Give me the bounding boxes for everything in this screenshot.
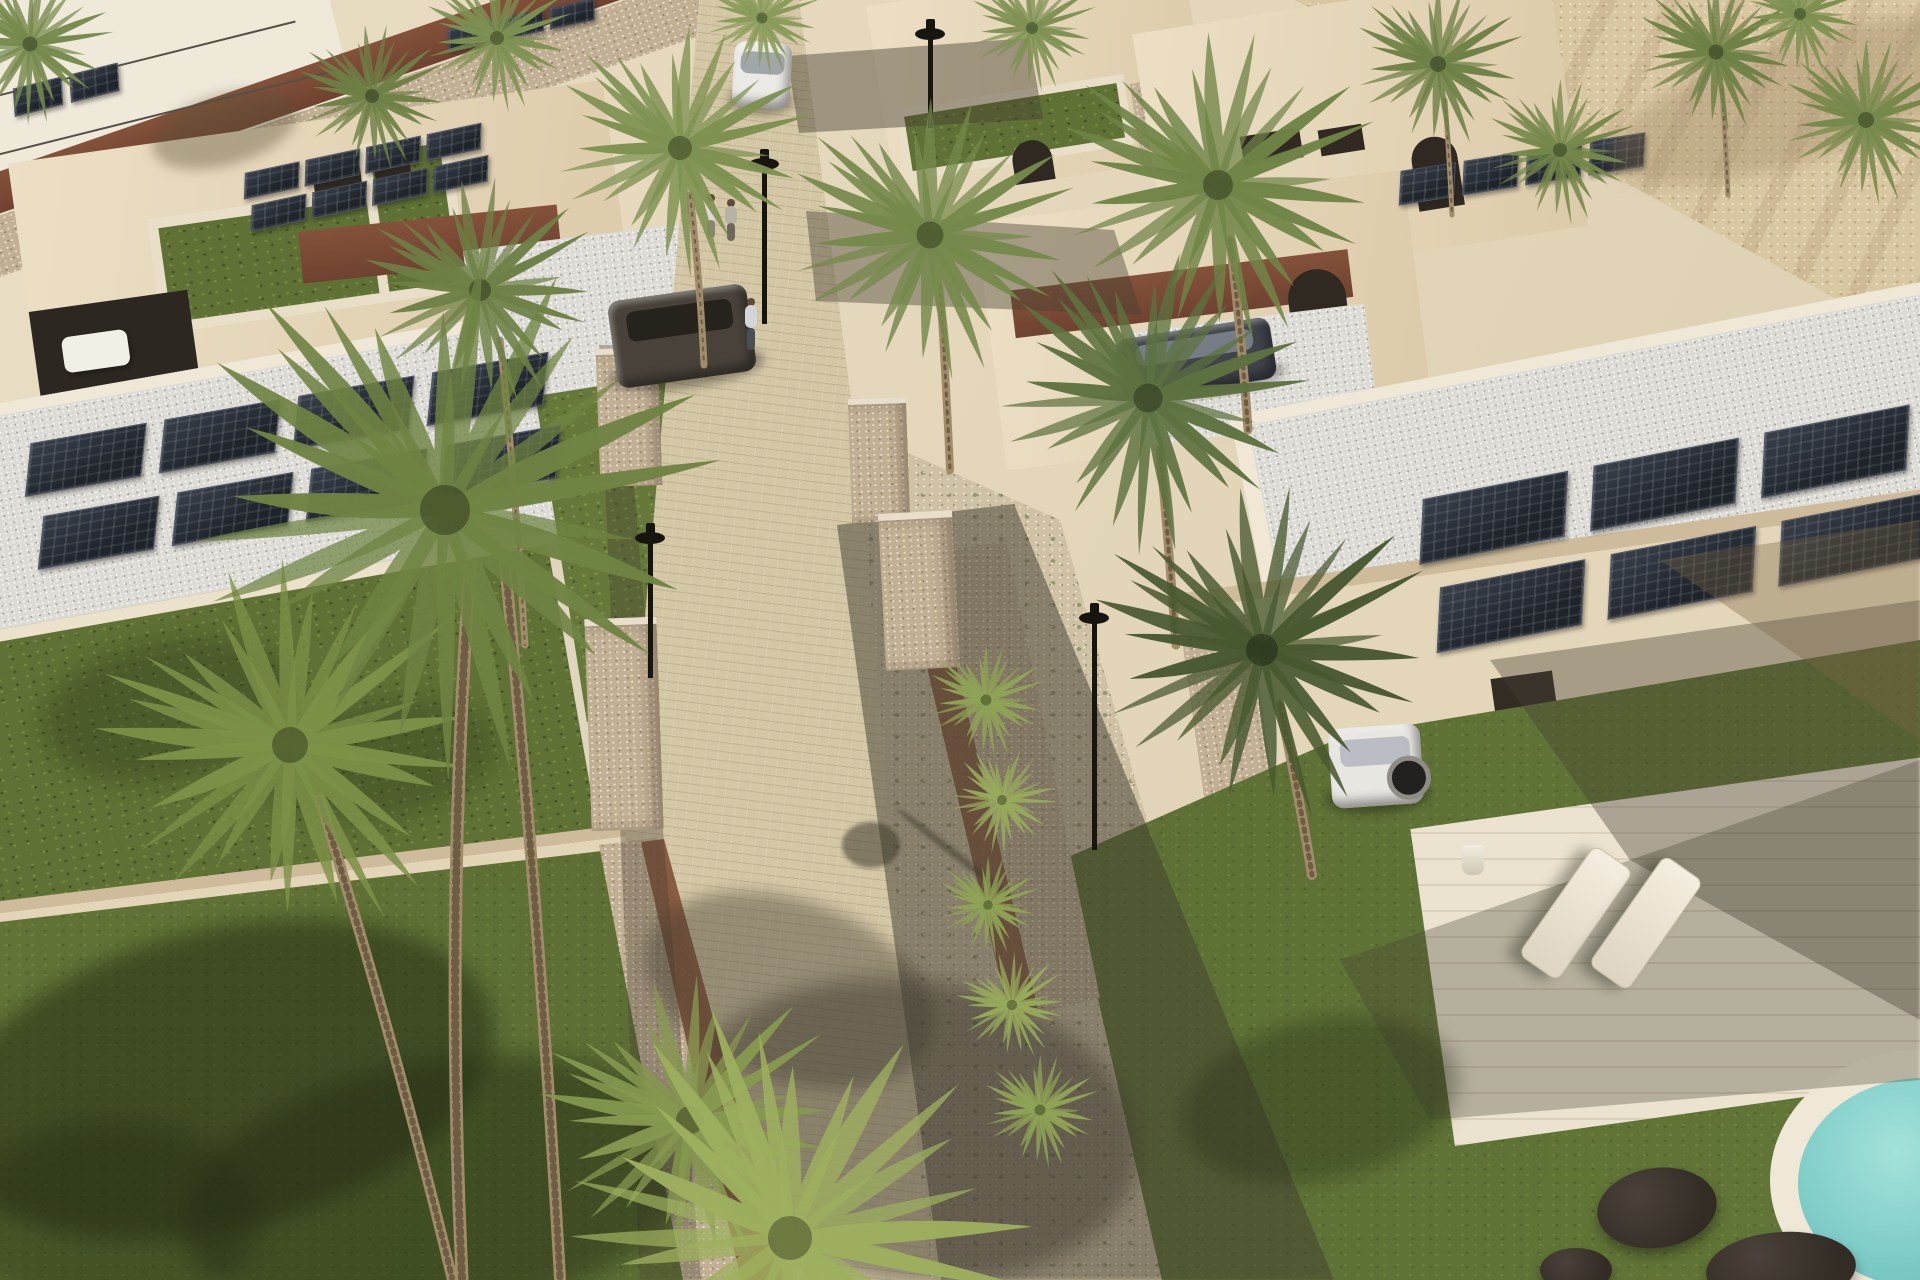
lamp-pole	[1092, 620, 1097, 850]
person-torso	[705, 201, 717, 221]
person-legs	[707, 220, 715, 238]
person	[724, 199, 738, 241]
street-lamp	[915, 36, 945, 128]
lamp-finial	[1090, 603, 1099, 614]
lamp-pole	[762, 166, 767, 324]
lamp-pole	[648, 540, 653, 678]
person	[704, 194, 718, 238]
lamp-finial	[646, 523, 655, 534]
lamps-people-layer	[0, 0, 1920, 1280]
lamp-pole	[928, 36, 933, 128]
person-torso	[745, 305, 757, 328]
lamp-finial	[926, 19, 935, 30]
street-lamp	[635, 540, 665, 678]
lamp-finial	[760, 149, 769, 160]
person-torso	[725, 206, 737, 225]
person-legs	[747, 328, 755, 350]
person	[744, 298, 758, 350]
architectural-render-scene	[0, 0, 1920, 1280]
street-lamp	[1079, 620, 1109, 850]
person-legs	[727, 223, 735, 241]
